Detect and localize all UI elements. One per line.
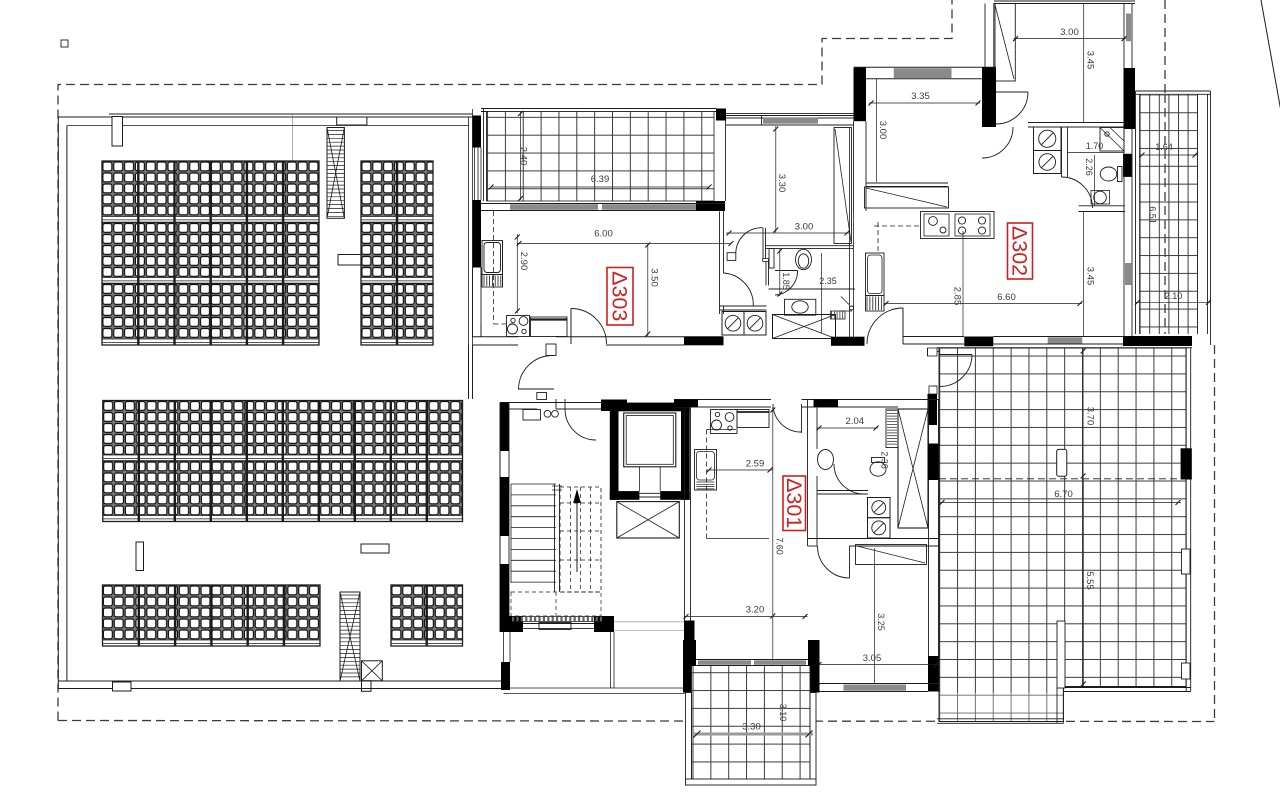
svg-text:2.59: 2.59 (746, 459, 765, 470)
svg-text:1.70: 1.70 (1086, 141, 1104, 151)
svg-text:3.35: 3.35 (911, 91, 930, 102)
svg-text:3.45: 3.45 (1084, 51, 1095, 70)
svg-text:6.70: 6.70 (1054, 489, 1073, 500)
svg-text:3.70: 3.70 (1084, 407, 1095, 426)
svg-text:3.30: 3.30 (776, 174, 787, 193)
svg-text:3.25: 3.25 (876, 613, 886, 631)
svg-text:2.26: 2.26 (1084, 158, 1094, 176)
svg-text:2.04: 2.04 (846, 416, 865, 427)
svg-text:3.45: 3.45 (1084, 267, 1095, 286)
svg-text:3.00: 3.00 (1060, 27, 1079, 38)
svg-text:3.30: 3.30 (742, 722, 761, 733)
svg-text:3.00: 3.00 (795, 222, 814, 233)
svg-text:3.10: 3.10 (778, 704, 788, 722)
svg-text:3.05: 3.05 (863, 653, 882, 664)
svg-text:6.51: 6.51 (1147, 206, 1157, 224)
svg-text:2.85: 2.85 (951, 287, 962, 306)
svg-text:3.20: 3.20 (746, 605, 765, 616)
svg-text:7.60: 7.60 (774, 537, 784, 555)
svg-text:2.40: 2.40 (517, 147, 528, 166)
svg-text:1.85: 1.85 (781, 272, 791, 290)
svg-text:6.39: 6.39 (591, 174, 610, 185)
svg-text:6.00: 6.00 (594, 229, 613, 240)
svg-text:Δ302: Δ302 (1008, 226, 1032, 276)
svg-text:6.60: 6.60 (997, 292, 1016, 303)
svg-text:2.36: 2.36 (879, 451, 889, 469)
svg-text:3.00: 3.00 (877, 121, 888, 140)
svg-text:1.64: 1.64 (1155, 142, 1173, 152)
svg-text:2.35: 2.35 (819, 276, 837, 286)
svg-text:Δ303: Δ303 (608, 271, 632, 321)
svg-text:2.10: 2.10 (1165, 291, 1183, 301)
svg-text:5.55: 5.55 (1084, 571, 1095, 590)
svg-text:2.90: 2.90 (518, 252, 529, 271)
svg-text:3.50: 3.50 (648, 268, 659, 287)
svg-text:Δ301: Δ301 (782, 478, 806, 528)
